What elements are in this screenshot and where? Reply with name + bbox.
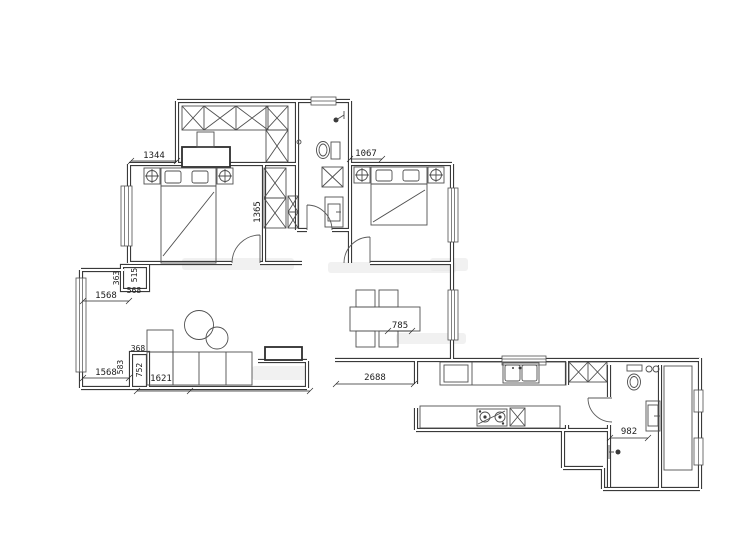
kitchen-counter-top bbox=[440, 362, 566, 385]
dimensions: 1344 1067 1365 363 515 568 1568 368 583 … bbox=[80, 149, 651, 441]
shower-icon bbox=[334, 111, 345, 123]
walls bbox=[81, 101, 700, 489]
nightstand-icon bbox=[144, 168, 160, 184]
door-bathroom-right bbox=[588, 398, 612, 422]
study-chair bbox=[197, 132, 214, 147]
bedroom-right bbox=[354, 167, 444, 225]
dim-1568-bottom: 1568 bbox=[95, 368, 117, 378]
round-coffee-table bbox=[185, 311, 214, 340]
bedroom-left bbox=[144, 168, 233, 263]
dim-752: 752 bbox=[135, 363, 144, 378]
window-bath-top bbox=[311, 97, 336, 105]
double-bed bbox=[161, 168, 216, 263]
hall-cabinet-column bbox=[264, 168, 298, 228]
window-bath-right-lower bbox=[694, 438, 703, 465]
hall-double-cabinet bbox=[569, 362, 607, 382]
dining-chair bbox=[379, 290, 398, 307]
dining-table bbox=[350, 307, 420, 331]
refrigerator bbox=[444, 365, 468, 382]
end-cabinet bbox=[510, 408, 525, 426]
dim-583: 583 bbox=[116, 360, 125, 375]
window-bedroom-right bbox=[448, 188, 458, 242]
gas-stove bbox=[477, 409, 507, 426]
dim-515: 515 bbox=[130, 268, 139, 283]
dim-1365: 1365 bbox=[253, 201, 263, 223]
side-table bbox=[265, 347, 302, 360]
dim-1568-top: 1568 bbox=[95, 291, 117, 301]
double-bed bbox=[371, 167, 427, 225]
vanity-sink bbox=[325, 197, 343, 227]
laundry-basket bbox=[322, 167, 343, 187]
windows bbox=[76, 97, 703, 465]
bathroom-top bbox=[297, 111, 344, 227]
toilet-icon bbox=[627, 365, 642, 390]
window-bath-right-upper bbox=[694, 390, 703, 412]
nightstand-icon bbox=[428, 167, 444, 183]
dining-chair bbox=[356, 331, 375, 347]
study-desk bbox=[182, 147, 230, 167]
floor-plan-drawing: 1344 1067 1365 363 515 568 1568 368 583 … bbox=[0, 0, 740, 555]
kitchen-counter-bottom bbox=[420, 406, 560, 428]
dim-568: 568 bbox=[127, 286, 142, 295]
dining-chair bbox=[379, 331, 398, 347]
round-coffee-table bbox=[206, 327, 228, 349]
dim-1621: 1621 bbox=[150, 374, 172, 384]
washbasin-icon bbox=[646, 366, 652, 372]
floor-plan-canvas: 1344 1067 1365 363 515 568 1568 368 583 … bbox=[0, 0, 740, 555]
dim-363: 363 bbox=[112, 271, 121, 286]
duct-shaft bbox=[664, 366, 692, 470]
dim-982: 982 bbox=[621, 427, 637, 437]
dim-785: 785 bbox=[392, 321, 408, 331]
nightstand-icon bbox=[354, 167, 370, 183]
double-basin-sink bbox=[503, 363, 539, 383]
dim-1344: 1344 bbox=[143, 151, 165, 161]
window-living-left bbox=[76, 278, 86, 372]
dim-368: 368 bbox=[131, 344, 146, 353]
toilet-icon bbox=[317, 142, 341, 160]
window-dining-right bbox=[448, 290, 458, 340]
kitchen bbox=[420, 362, 607, 428]
nightstand-icon bbox=[217, 168, 233, 184]
window-bedroom-left bbox=[121, 186, 132, 246]
dim-2688: 2688 bbox=[364, 373, 386, 383]
dim-1067: 1067 bbox=[355, 149, 377, 159]
dining-chair bbox=[356, 290, 375, 307]
bathroom-right bbox=[609, 365, 692, 470]
